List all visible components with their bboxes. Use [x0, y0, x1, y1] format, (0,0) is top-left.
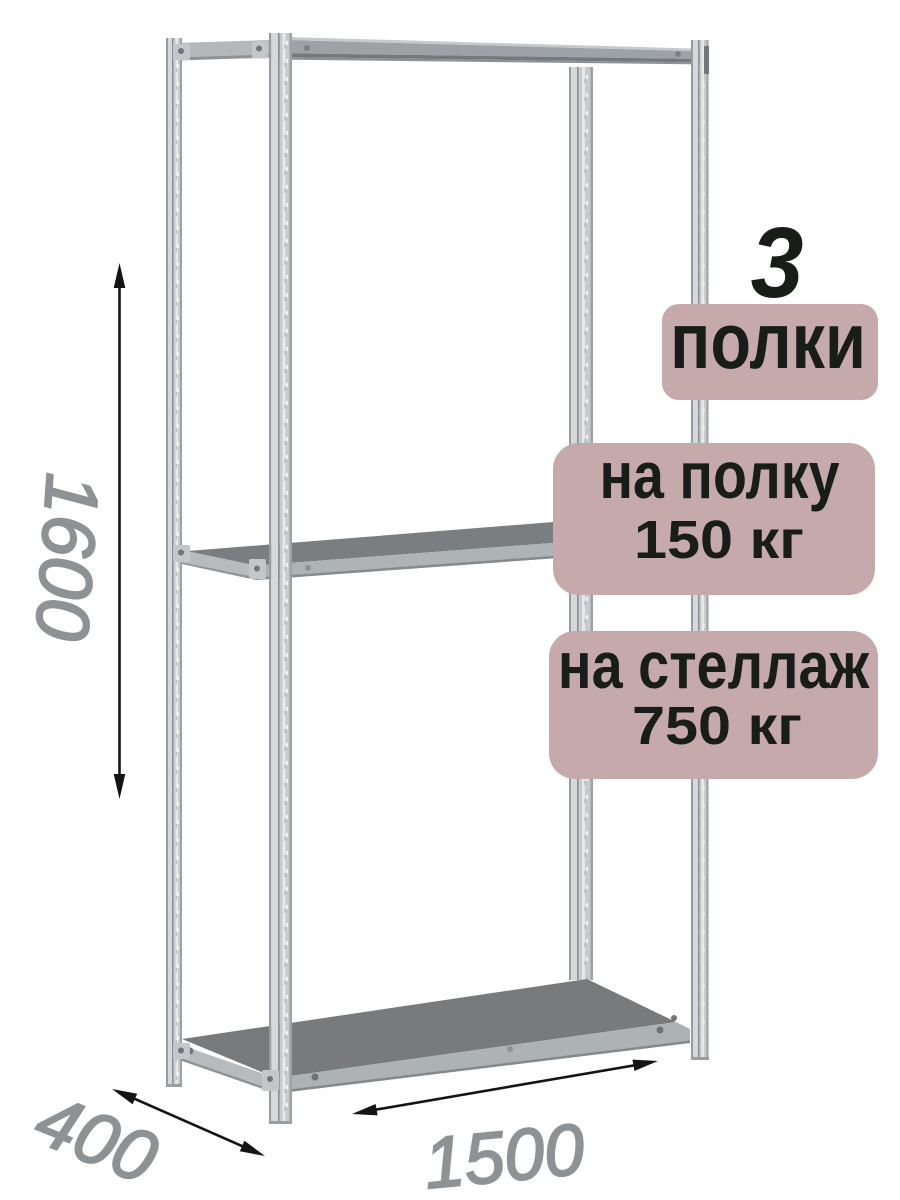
- svg-text:полки: полки: [670, 298, 866, 386]
- svg-text:750 кг: 750 кг: [632, 696, 802, 756]
- svg-text:1500: 1500: [421, 1109, 588, 1200]
- svg-text:на стеллаж: на стеллаж: [558, 629, 870, 702]
- svg-text:150 кг: 150 кг: [634, 510, 804, 570]
- svg-text:1600: 1600: [20, 471, 115, 644]
- svg-text:на полку: на полку: [599, 439, 839, 513]
